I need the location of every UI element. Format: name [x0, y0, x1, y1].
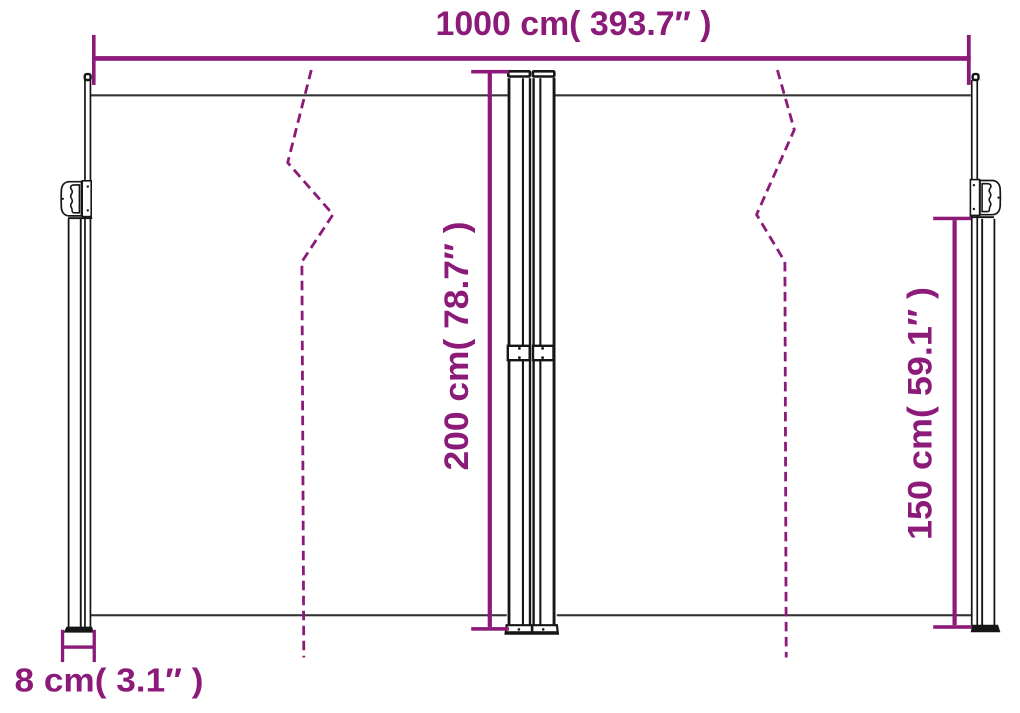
svg-text:8 cm( 3.1″ ): 8 cm( 3.1″ ) — [15, 662, 204, 699]
svg-text:200 cm( 78.7″ ): 200 cm( 78.7″ ) — [438, 222, 476, 471]
svg-text:1000 cm( 393.7″ ): 1000 cm( 393.7″ ) — [436, 5, 712, 43]
svg-text:150 cm( 59.1″ ): 150 cm( 59.1″ ) — [902, 287, 940, 540]
